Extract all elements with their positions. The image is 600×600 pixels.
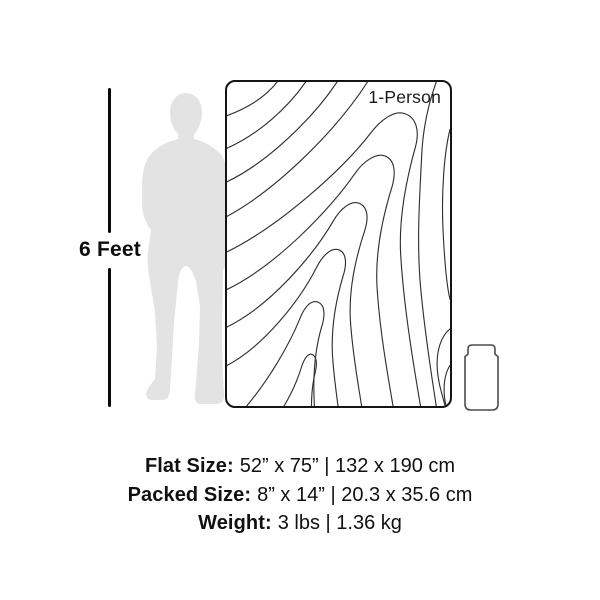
height-ruler-line-top [108, 88, 111, 233]
weight-label: Weight: [198, 512, 272, 534]
blanket-diagram: 1-Person [225, 80, 452, 408]
spec-row-packed-size: Packed Size:8” x 14” | 20.3 x 35.6 cm [0, 481, 600, 510]
packed-size-value: 8” x 14” | 20.3 x 35.6 cm [257, 484, 472, 506]
topo-pattern-icon [227, 82, 450, 406]
weight-value: 3 lbs | 1.36 kg [278, 512, 402, 534]
product-size-diagram: 6 Feet 1-Person Flat Size:5 [0, 0, 600, 600]
spec-row-weight: Weight:3 lbs | 1.36 kg [0, 509, 600, 538]
spec-row-flat-size: Flat Size:52” x 75” | 132 x 190 cm [0, 452, 600, 481]
packed-sack-icon [463, 343, 500, 412]
person-silhouette-icon [137, 92, 233, 406]
height-ruler-label: 6 Feet [79, 238, 141, 262]
flat-size-value: 52” x 75” | 132 x 190 cm [240, 455, 455, 477]
blanket-size-label: 1-Person [368, 87, 441, 108]
packed-size-label: Packed Size: [128, 484, 252, 506]
height-ruler-line-bottom [108, 268, 111, 407]
spec-list: Flat Size:52” x 75” | 132 x 190 cm Packe… [0, 452, 600, 538]
flat-size-label: Flat Size: [145, 455, 234, 477]
